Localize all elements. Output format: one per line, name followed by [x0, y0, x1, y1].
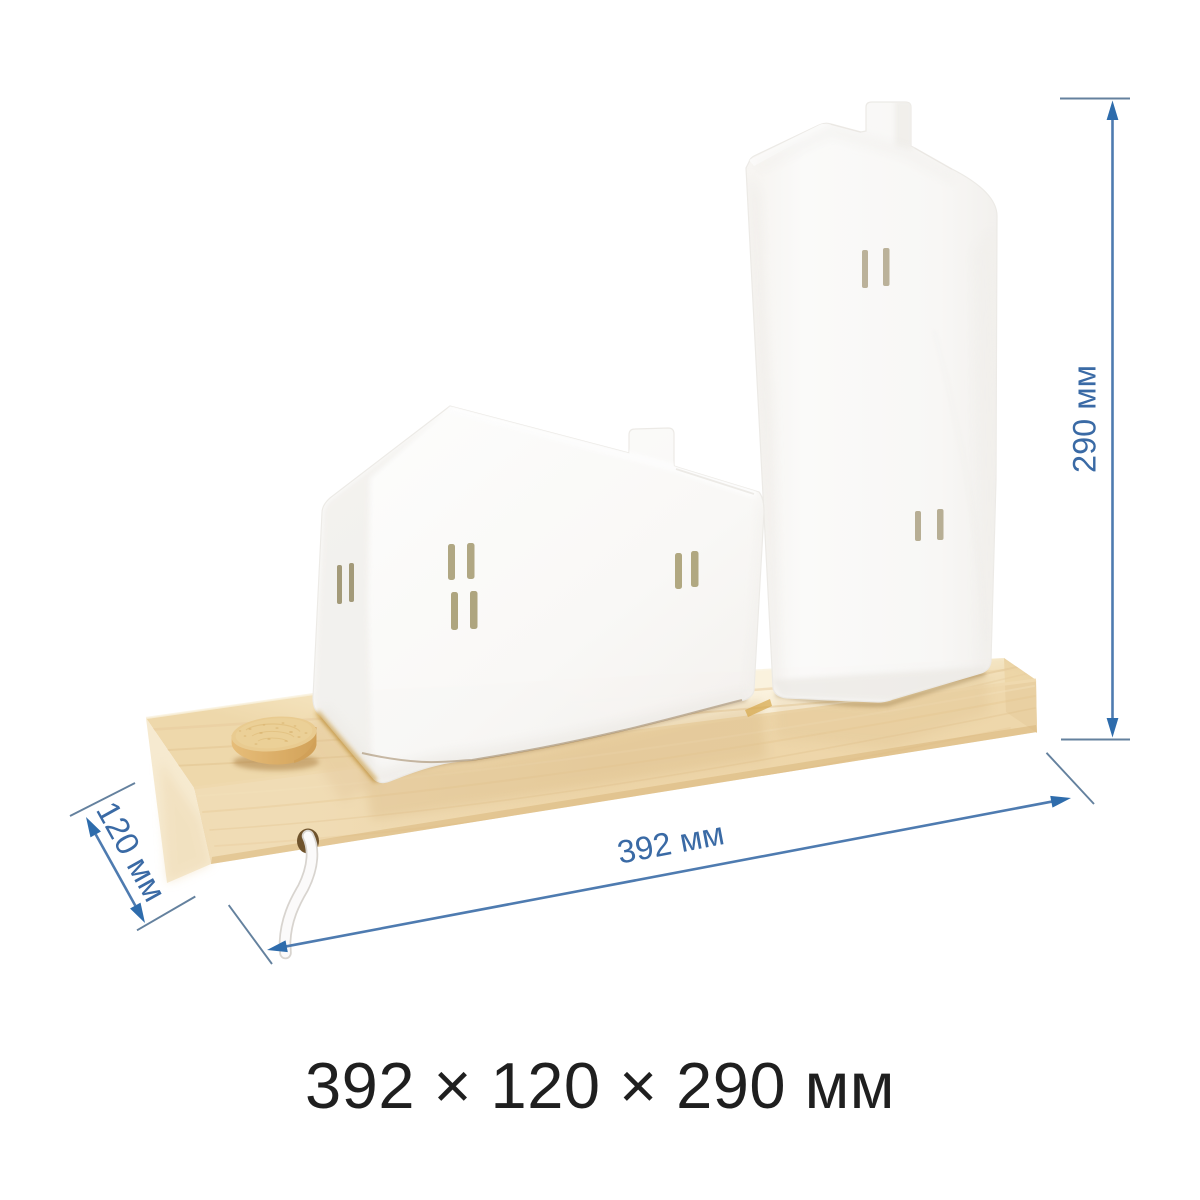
- svg-text:392 × 120 × 290 мм: 392 × 120 × 290 мм: [305, 1049, 895, 1122]
- svg-text:290 мм: 290 мм: [1067, 365, 1103, 473]
